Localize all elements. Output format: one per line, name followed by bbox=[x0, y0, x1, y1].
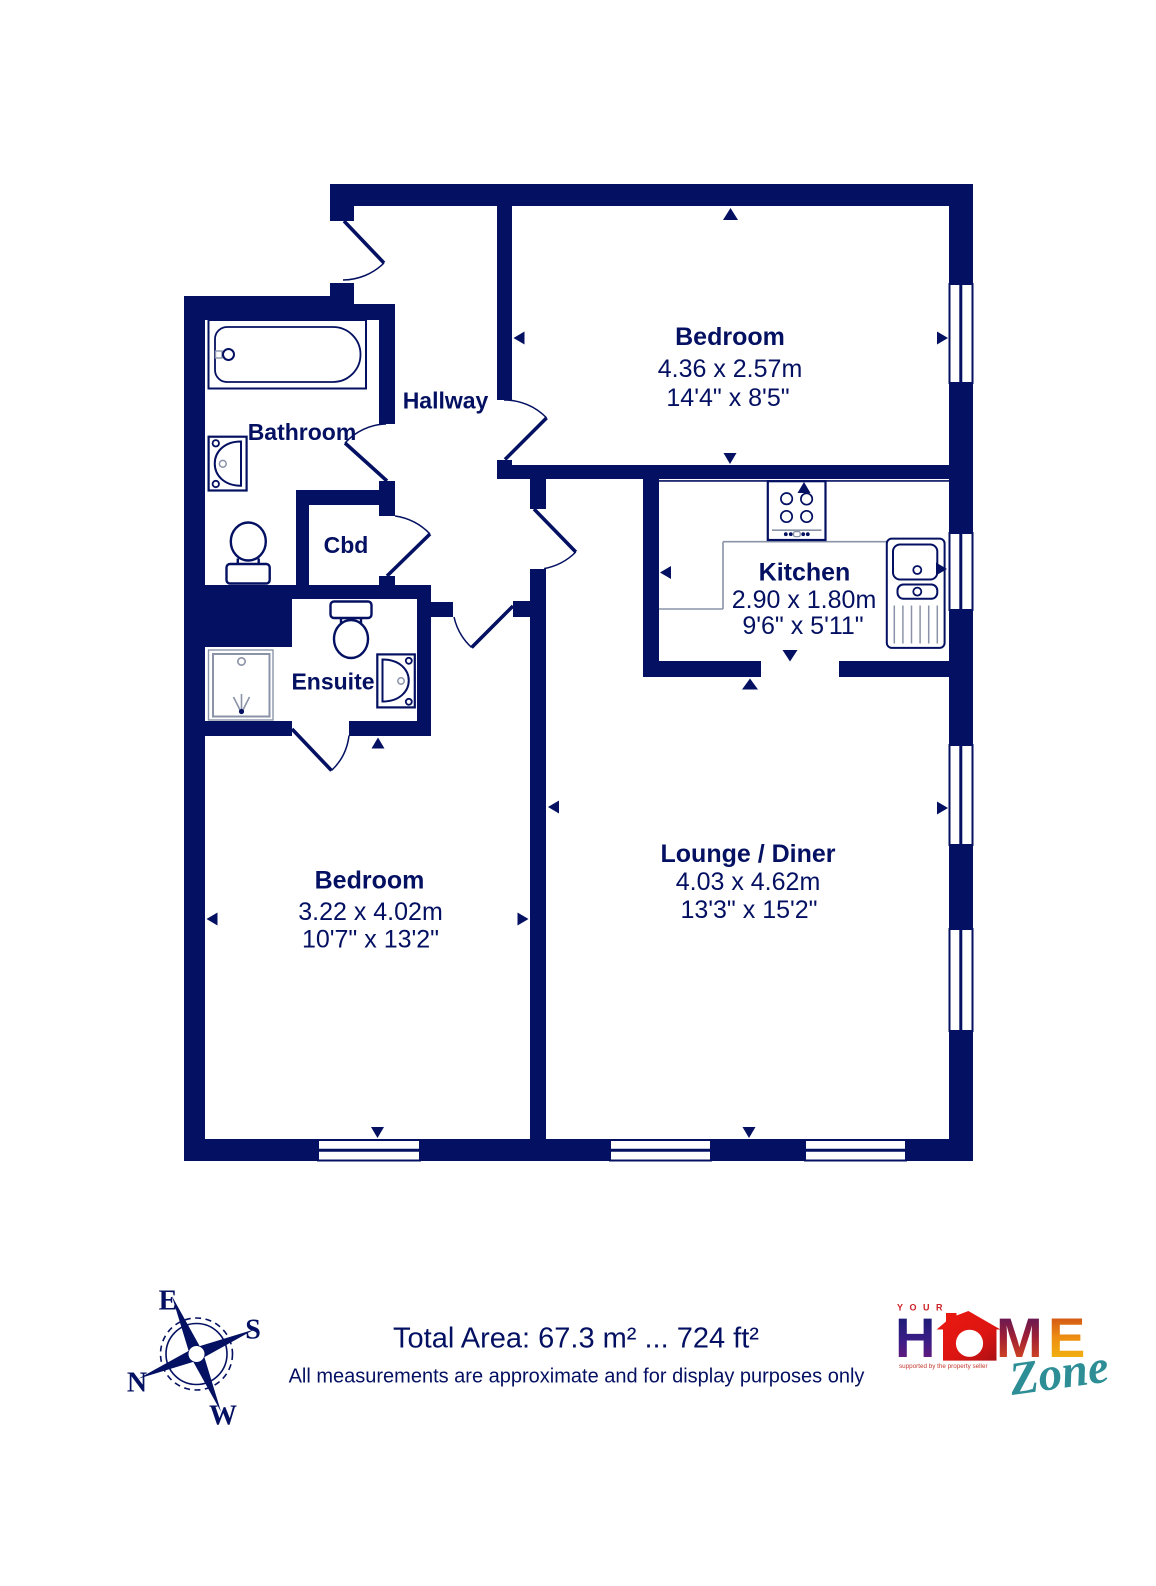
svg-text:Bedroom: Bedroom bbox=[315, 867, 425, 895]
svg-text:Cbd: Cbd bbox=[324, 532, 369, 558]
svg-text:W: W bbox=[209, 1401, 237, 1432]
svg-text:3.22 x 4.02m: 3.22 x 4.02m bbox=[298, 898, 443, 926]
svg-text:supported by the property sell: supported by the property seller bbox=[899, 1363, 988, 1370]
svg-text:4.36 x 2.57m: 4.36 x 2.57m bbox=[658, 355, 803, 383]
svg-text:Bathroom: Bathroom bbox=[248, 419, 357, 445]
svg-text:4.03 x 4.62m: 4.03 x 4.62m bbox=[676, 868, 821, 896]
svg-text:9'6" x 5'11": 9'6" x 5'11" bbox=[742, 612, 863, 640]
svg-text:Lounge / Diner: Lounge / Diner bbox=[661, 840, 836, 868]
svg-text:Kitchen: Kitchen bbox=[759, 558, 851, 586]
svg-text:N: N bbox=[127, 1368, 147, 1399]
svg-text:All measurements are approxima: All measurements are approximate and for… bbox=[289, 1366, 865, 1388]
svg-text:13'3" x 15'2": 13'3" x 15'2" bbox=[680, 896, 817, 924]
svg-text:10'7" x 13'2": 10'7" x 13'2" bbox=[302, 926, 439, 954]
svg-text:Total Area: 67.3 m² ... 724 ft: Total Area: 67.3 m² ... 724 ft² bbox=[393, 1323, 759, 1355]
svg-text:Bedroom: Bedroom bbox=[675, 323, 785, 351]
svg-text:2.90 x 1.80m: 2.90 x 1.80m bbox=[732, 586, 877, 614]
svg-text:Hallway: Hallway bbox=[403, 388, 489, 414]
svg-text:Ensuite: Ensuite bbox=[291, 669, 374, 695]
svg-text:14'4" x 8'5": 14'4" x 8'5" bbox=[666, 384, 789, 412]
svg-text:E: E bbox=[159, 1286, 178, 1317]
svg-text:H: H bbox=[895, 1306, 935, 1369]
svg-text:S: S bbox=[245, 1315, 261, 1346]
